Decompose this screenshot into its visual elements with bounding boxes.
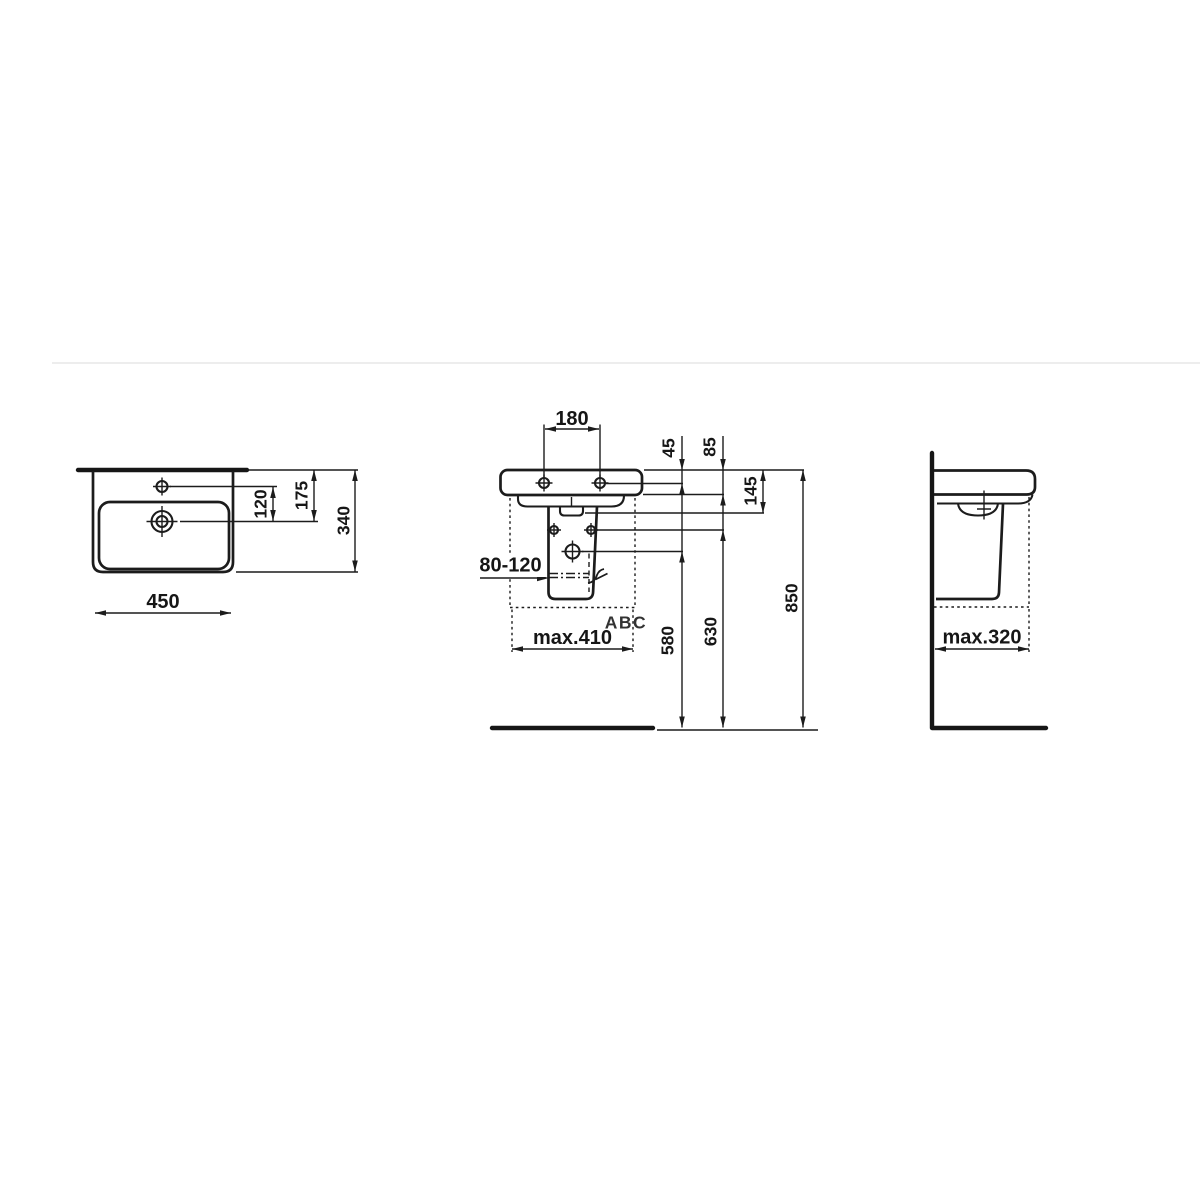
dim-180-label: 180 [555,408,588,430]
extension-lines [170,470,358,572]
basin-front-outline [501,470,643,495]
dim-450-label: 450 [146,591,179,613]
mounting-hole-symbol-right [592,475,609,492]
dim-580-label: 580 [658,626,678,655]
dim-340-label: 340 [334,506,354,535]
hidden-outline-box [934,497,1029,607]
trap-water-lines [549,574,589,578]
pedestal-side-outline [936,504,1003,599]
dim-45-label: 45 [659,438,679,458]
drain-symbol [147,506,178,537]
dimension-arrows [95,470,358,616]
dim-80-120-label: 80-120 [479,555,541,577]
drain-symbol [562,541,584,563]
dim-630-label: 630 [701,617,721,646]
reference-lines [582,470,804,552]
dim-175-label: 175 [292,481,312,510]
washbasin-dimension-drawing: 450 120 175 340 [0,0,1200,1200]
technical-drawing: 450 120 175 340 [0,0,1200,1200]
dim-850-label: 850 [782,583,802,612]
mounting-hole-symbol-left [536,475,553,492]
dim-max320-label: max.320 [943,627,1022,649]
overflow-outlet [560,507,583,516]
top-view: 450 120 175 340 [78,470,358,616]
dimension-lines [95,470,355,613]
trap-squiggle [588,569,608,583]
tap-hole-symbol [153,478,171,496]
dim-85-label: 85 [700,437,720,457]
dim-max410-label: max.410 [533,627,612,649]
dim-145-label: 145 [741,476,761,505]
side-view: max.320 [932,453,1046,728]
dim-120-label: 120 [251,489,271,518]
front-view: 180 45 85 145 80-120 max.410 580 630 850 [476,408,818,730]
watermark-text: ABC [605,613,647,633]
